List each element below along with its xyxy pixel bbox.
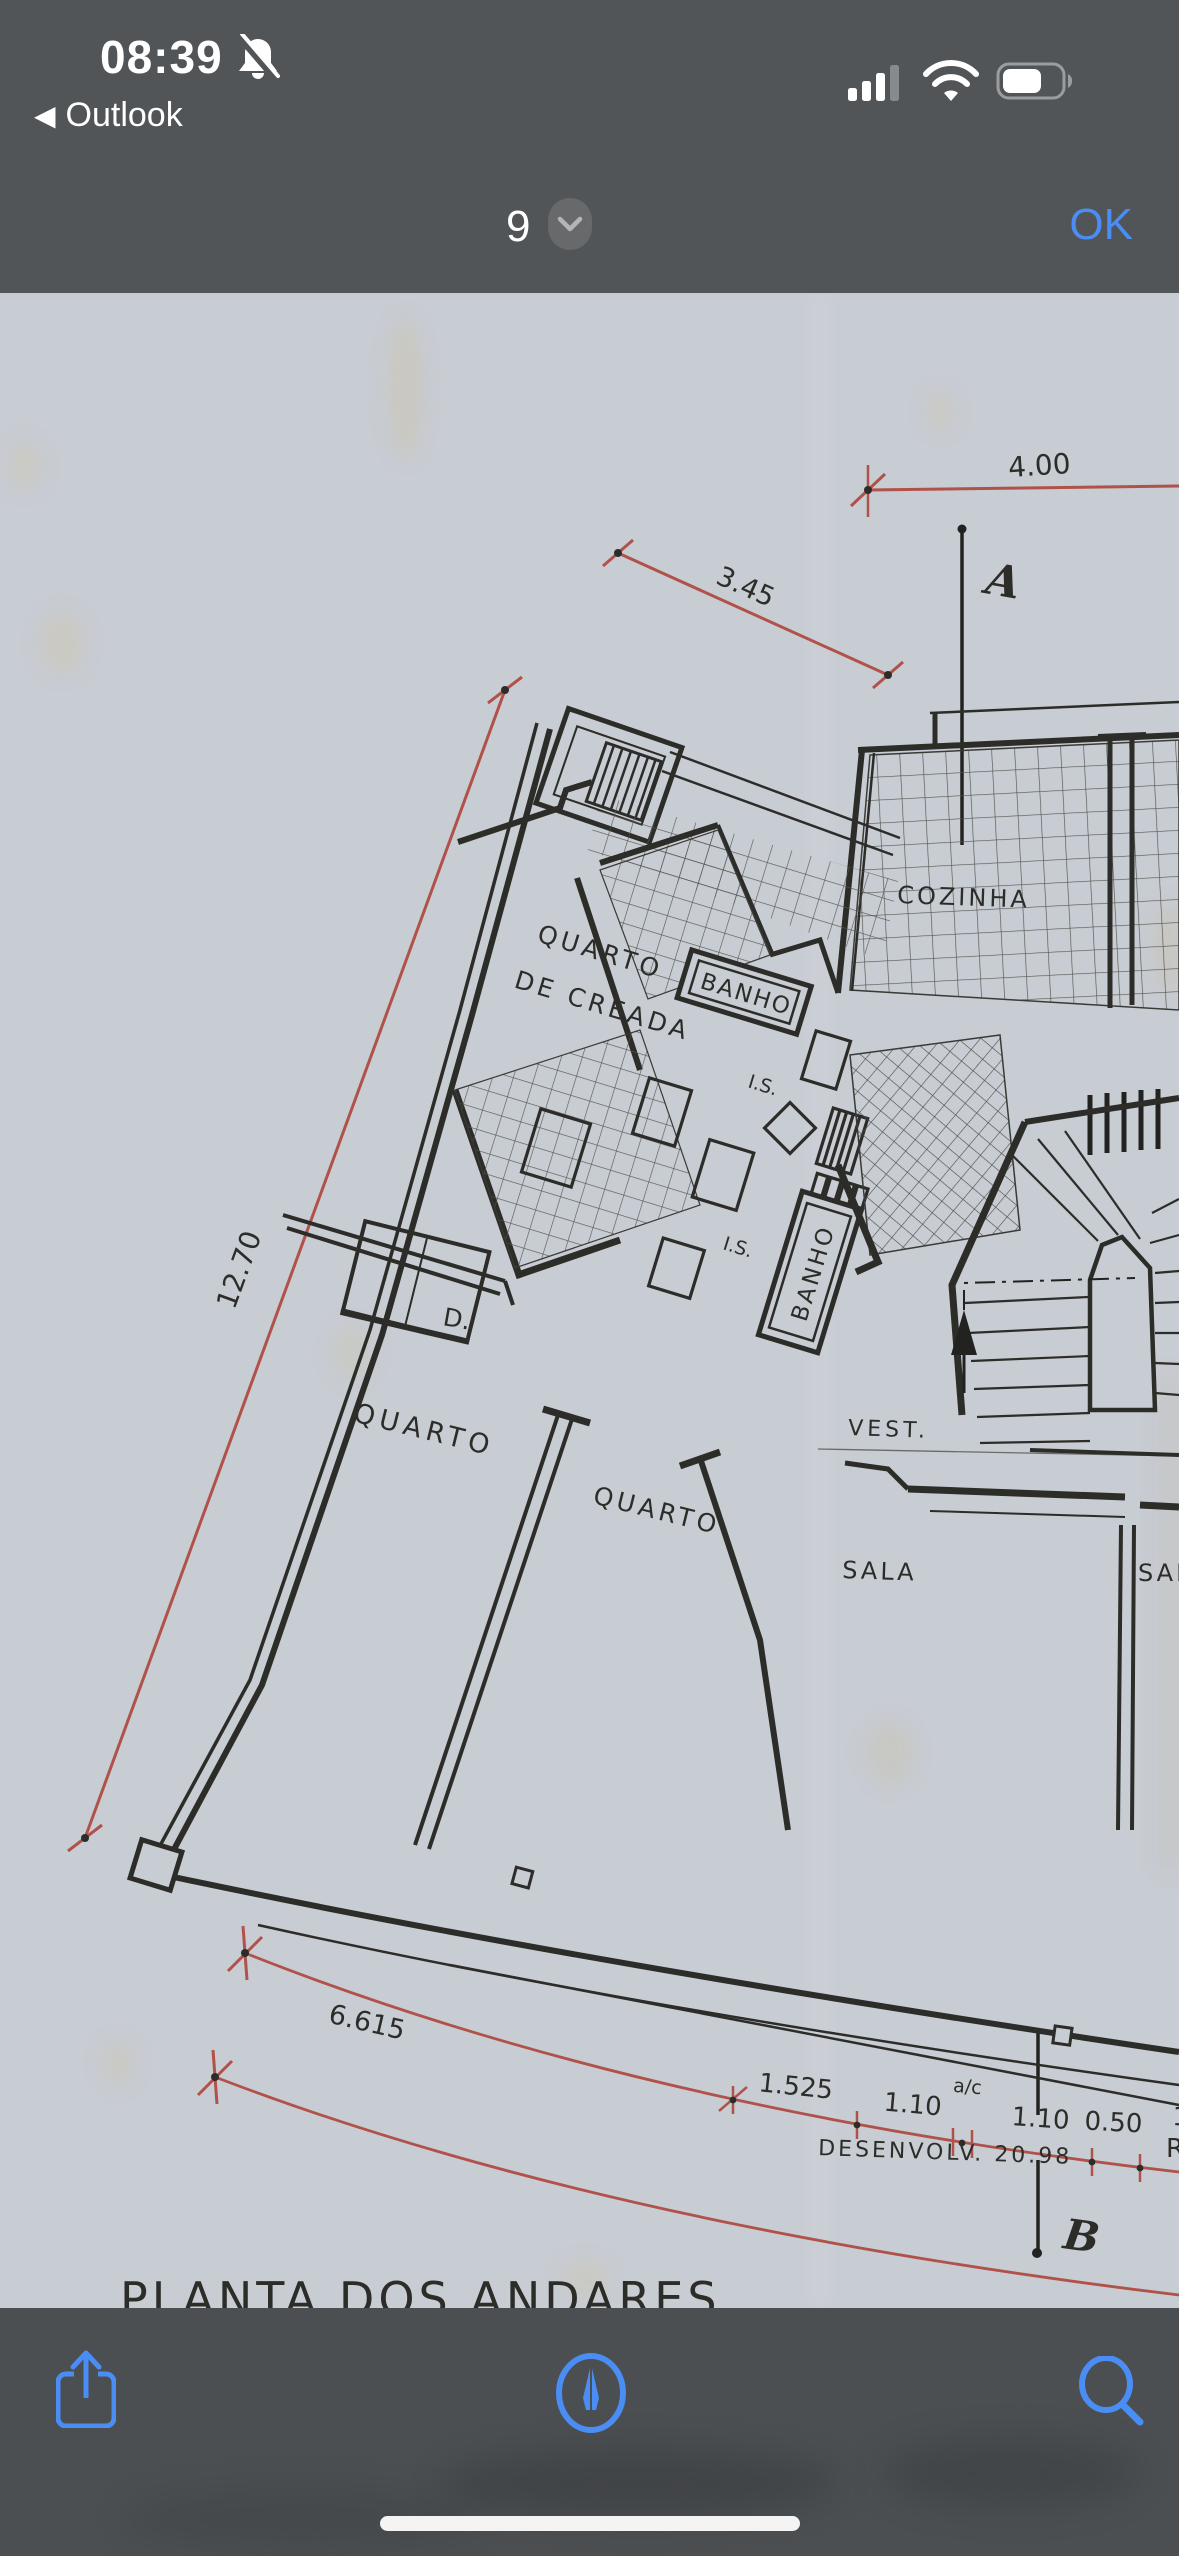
- ok-button[interactable]: OK: [1069, 200, 1133, 250]
- room-label-vest: VEST.: [848, 1416, 930, 1444]
- stair-newel: [1090, 1237, 1155, 1410]
- cellular-signal-icon: [848, 60, 910, 102]
- back-button[interactable]: ◀ Outlook: [34, 96, 183, 135]
- toolbar-smudge: [880, 2438, 1140, 2508]
- page-number: 9: [506, 202, 530, 252]
- bell-slash-icon: [236, 34, 280, 82]
- markup-button[interactable]: [554, 2352, 628, 2434]
- facade-door1: [512, 1867, 533, 1888]
- room-label-closet: D.: [441, 1302, 473, 1335]
- page-selector[interactable]: [548, 198, 592, 250]
- share-icon: [56, 2350, 116, 2428]
- share-button[interactable]: [56, 2350, 116, 2428]
- battery-icon: [996, 60, 1080, 102]
- section-a-dot: [958, 525, 967, 534]
- dim-0-50: 0.50: [1084, 2107, 1143, 2140]
- dim-1-partial: 1.: [1172, 2102, 1179, 2133]
- toolbar-smudge: [440, 2448, 840, 2518]
- floorplan-image[interactable]: A B COZINHA: [0, 293, 1179, 2308]
- facade-door2: [1053, 2026, 1072, 2045]
- back-arrow-icon: ◀: [34, 102, 56, 130]
- chevron-down-icon: [557, 215, 583, 233]
- dim-1-10b: 1.10: [1011, 2102, 1071, 2136]
- section-b-dot: [1032, 2248, 1042, 2258]
- section-marker-b: B: [1060, 2209, 1103, 2263]
- corner-block: [130, 1840, 182, 1891]
- nav-row: 9 OK: [0, 196, 1179, 266]
- top-chrome: 08:39 ◀ Outlook: [0, 0, 1179, 293]
- dim-r-partial: R: [1166, 2134, 1179, 2164]
- room-label-cozinha: COZINHA: [897, 881, 1030, 914]
- search-button[interactable]: [1078, 2356, 1146, 2426]
- room-label-sala2: SALA: [1138, 1559, 1179, 1587]
- home-indicator[interactable]: [380, 2516, 800, 2531]
- elevator-hatch: [850, 1035, 1020, 1255]
- status-time: 08:39: [100, 30, 223, 84]
- dim-1-10a: 1.10: [883, 2088, 943, 2123]
- back-app-label: Outlook: [66, 96, 183, 135]
- plan-title: PLANTA DOS ANDARES: [120, 2272, 721, 2308]
- markup-pen-icon: [554, 2352, 628, 2434]
- bottom-toolbar: [0, 2308, 1179, 2556]
- dim-4-00: 4.00: [1007, 447, 1071, 484]
- search-icon: [1078, 2356, 1146, 2426]
- dim-ac: a/c: [952, 2075, 982, 2099]
- room-label-sala: SALA: [842, 1556, 917, 1587]
- wifi-icon: [922, 58, 980, 102]
- iphone-screen: 08:39 ◀ Outlook: [0, 0, 1179, 2556]
